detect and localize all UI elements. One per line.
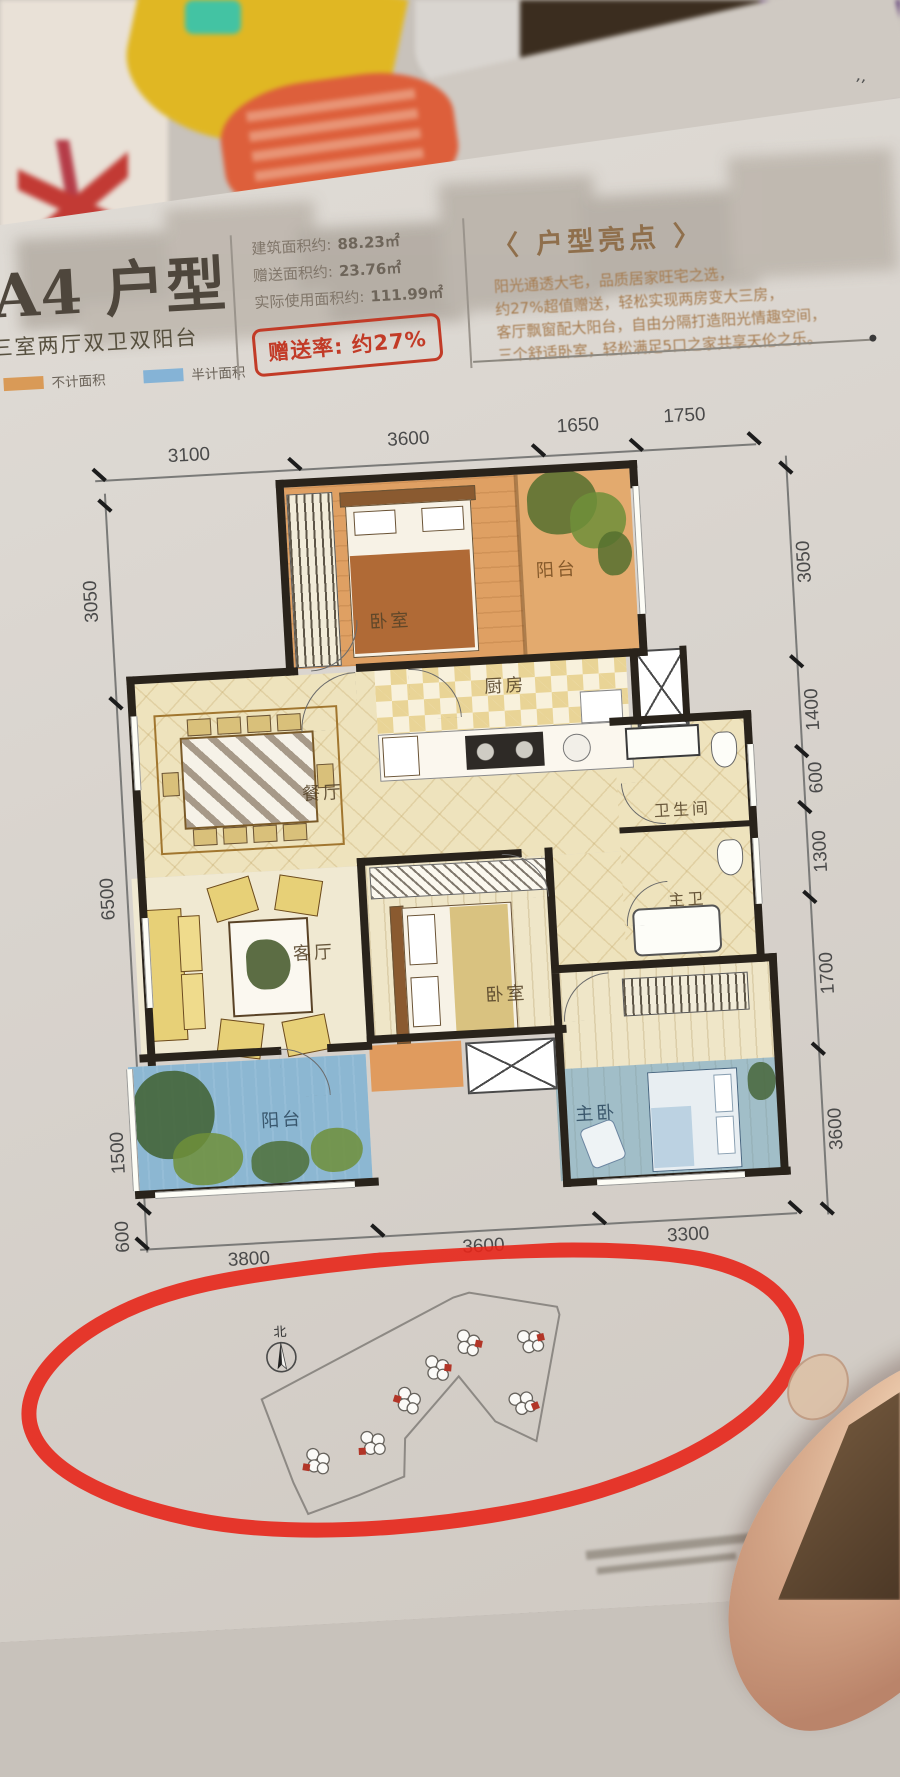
- bed-blanket: [350, 549, 475, 654]
- wall: [629, 460, 639, 488]
- stove: [465, 732, 545, 770]
- chair: [217, 716, 242, 734]
- floorplan: 3100 3600 1650 1750 3050 6500 1500 600 3…: [93, 411, 839, 1294]
- room-label-master-bedroom: 主卧: [551, 1097, 642, 1128]
- room-label-bedroom-mid: 卧室: [461, 978, 552, 1009]
- wall: [327, 1042, 372, 1052]
- area-value: 88.23㎡: [337, 232, 400, 253]
- area-label: 建筑面积约:: [251, 236, 332, 258]
- chair: [253, 825, 278, 843]
- door-arc-balcony: [279, 1046, 331, 1098]
- dim-label: 1400: [800, 677, 826, 742]
- area-figures: 建筑面积约:88.23㎡ 赠送面积约:23.76㎡ 实际使用面积约:111.99…: [251, 226, 444, 317]
- area-legend: 不计面积 半计面积: [3, 361, 246, 394]
- building-icon: [424, 1355, 452, 1381]
- chair: [187, 718, 212, 736]
- area-label: 赠送面积约:: [252, 263, 333, 285]
- chair: [247, 715, 272, 733]
- building-icon: [391, 1385, 423, 1415]
- dim-label: 3100: [148, 443, 229, 469]
- building-icon: [358, 1431, 386, 1456]
- master-throw: [651, 1106, 694, 1168]
- pillow: [407, 914, 438, 965]
- room-label-balcony-bottom: 阳台: [236, 1103, 327, 1134]
- dim-label: 600: [111, 1204, 137, 1269]
- room-label-balcony-top: 阳台: [511, 553, 602, 584]
- area-label: 实际使用面积约:: [254, 288, 365, 312]
- chair: [162, 772, 180, 797]
- shaft-box: [465, 1037, 558, 1094]
- red-marker-circle: [21, 1235, 806, 1547]
- building-icon: [302, 1447, 331, 1474]
- north-label: 北: [273, 1325, 287, 1341]
- building-icon: [454, 1329, 484, 1357]
- bed-blanket: [450, 904, 515, 1033]
- dim-label: 3050: [79, 569, 105, 634]
- dim-label: 600: [804, 745, 830, 810]
- armchair: [274, 874, 323, 916]
- dim-label: 1300: [808, 819, 834, 884]
- dim-label: 3600: [824, 1096, 850, 1161]
- chair: [223, 826, 248, 844]
- teal-clip: [185, 0, 241, 34]
- dim-label: 3050: [792, 529, 818, 594]
- dim-label: 6500: [96, 867, 122, 932]
- chair: [193, 828, 218, 846]
- dim-label: 1700: [815, 941, 841, 1006]
- building-icon: [507, 1386, 540, 1417]
- bathroom-sink: [625, 724, 701, 760]
- dim-label: 3600: [368, 426, 449, 452]
- room-label-dining: 餐厅: [277, 777, 368, 808]
- pillow: [410, 976, 441, 1027]
- legend-swatch-orange: [3, 375, 44, 390]
- pillow: [716, 1116, 736, 1155]
- room-label-living: 客厅: [268, 936, 359, 967]
- pillow: [713, 1074, 733, 1113]
- building-icon: [516, 1326, 547, 1355]
- pillow: [421, 506, 464, 532]
- chair: [283, 823, 308, 841]
- north-compass-icon: 北: [265, 1324, 297, 1372]
- area-value: 111.99㎡: [370, 284, 444, 306]
- hall-corridor: [553, 851, 629, 973]
- room-label-master-bath: 主卫: [642, 883, 733, 912]
- room-label-kitchen: 厨房: [460, 669, 551, 700]
- pillow: [353, 510, 396, 536]
- sofa-seat: [181, 973, 206, 1030]
- room-label-bedroom-top: 卧室: [345, 604, 436, 635]
- orange-bay-strip: [369, 1041, 463, 1092]
- master-wardrobe: [622, 972, 750, 1017]
- dim-label: 1500: [106, 1120, 132, 1185]
- building-icons: [295, 1324, 554, 1476]
- brochure-paper: A4 户型 三室两厅双卫双阳台 不计面积 半计面积 建筑面积约:88.23㎡ 赠…: [0, 84, 900, 1643]
- highlights-block: 〈 户型亮点 〉 阳光通透大宅，品质居家旺宅之选， 约27%超值赠送，轻松实现两…: [490, 201, 900, 367]
- sofa-seat: [178, 915, 203, 972]
- chair: [276, 713, 301, 731]
- dim-label: 1750: [644, 403, 725, 429]
- dim-label: 1650: [537, 413, 618, 439]
- fridge: [382, 736, 420, 778]
- legend-label-orange: 不计面积: [51, 368, 106, 391]
- area-value: 23.76㎡: [338, 259, 401, 280]
- legend-swatch-blue: [143, 368, 184, 383]
